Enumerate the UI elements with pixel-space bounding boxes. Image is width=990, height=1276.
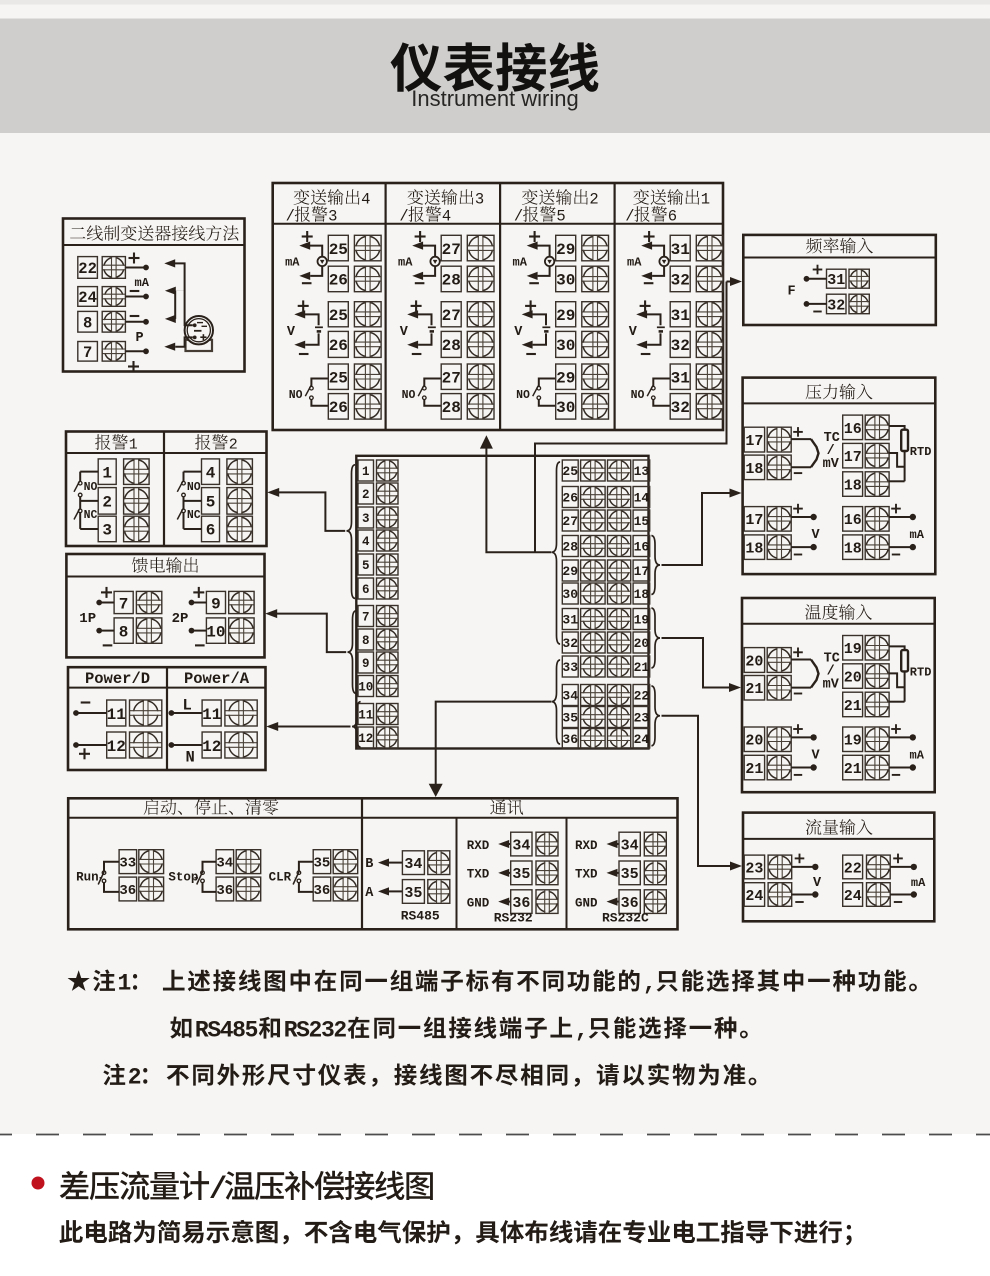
svg-text:L: L (183, 697, 192, 715)
svg-text:20: 20 (745, 653, 763, 670)
svg-text:35: 35 (404, 885, 422, 902)
svg-text:26: 26 (562, 491, 578, 506)
svg-text:5: 5 (556, 208, 565, 226)
svg-text:25: 25 (329, 370, 348, 388)
svg-text:34: 34 (512, 837, 530, 854)
svg-text:NO: NO (402, 389, 416, 402)
svg-text:/: / (514, 208, 523, 226)
svg-text:9: 9 (362, 657, 370, 671)
svg-text:NO: NO (84, 481, 98, 494)
svg-text:16: 16 (844, 512, 862, 529)
svg-text:Power/A: Power/A (184, 670, 250, 688)
svg-text:34: 34 (404, 856, 422, 873)
svg-text:23: 23 (634, 711, 650, 726)
svg-text:2: 2 (102, 494, 112, 512)
svg-text:29: 29 (556, 307, 575, 325)
svg-text:Run: Run (76, 871, 99, 885)
svg-text:17: 17 (745, 512, 763, 529)
svg-text:21: 21 (844, 761, 862, 778)
svg-text:30: 30 (556, 272, 575, 290)
svg-text:34: 34 (562, 689, 578, 704)
svg-text:28: 28 (442, 399, 461, 417)
svg-text:1: 1 (701, 191, 710, 209)
svg-text:V: V (287, 325, 296, 340)
svg-text:RS485: RS485 (195, 1018, 259, 1044)
svg-text:10: 10 (206, 623, 225, 641)
svg-text:25: 25 (329, 241, 348, 259)
svg-text:NO: NO (289, 389, 303, 402)
svg-text:31: 31 (671, 307, 690, 325)
svg-text:RS232: RS232 (284, 1018, 348, 1044)
svg-text:27: 27 (562, 514, 578, 529)
svg-text:26: 26 (329, 337, 348, 355)
svg-text:32: 32 (562, 636, 578, 651)
svg-text:24: 24 (634, 732, 650, 747)
svg-text:29: 29 (556, 241, 575, 259)
svg-text:7: 7 (119, 595, 129, 613)
svg-text:GND: GND (467, 896, 490, 910)
svg-text:28: 28 (442, 337, 461, 355)
svg-text:RS232: RS232 (494, 911, 533, 926)
svg-text:11: 11 (107, 706, 126, 724)
svg-text:16: 16 (844, 421, 862, 438)
svg-text:35: 35 (621, 866, 639, 883)
svg-text:21: 21 (634, 660, 650, 675)
svg-text:V: V (629, 325, 638, 340)
svg-text:19: 19 (844, 641, 862, 658)
svg-text:mA: mA (910, 528, 925, 542)
svg-text:24: 24 (745, 888, 763, 905)
svg-text:13: 13 (634, 464, 650, 479)
svg-text:11: 11 (358, 709, 373, 723)
svg-text:mA: mA (910, 748, 925, 762)
svg-text:,: , (643, 971, 657, 997)
svg-text:1: 1 (129, 437, 138, 454)
svg-text:26: 26 (329, 272, 348, 290)
svg-text:8: 8 (362, 634, 370, 648)
svg-text:31: 31 (562, 613, 578, 628)
svg-text:2P: 2P (172, 611, 189, 627)
svg-text:30: 30 (556, 337, 575, 355)
svg-text:V: V (812, 528, 821, 543)
svg-text:18: 18 (844, 541, 862, 558)
svg-text:19: 19 (844, 733, 862, 750)
svg-text:11: 11 (202, 706, 221, 724)
svg-text:24: 24 (78, 289, 97, 307)
svg-text:30: 30 (562, 587, 578, 602)
svg-text:/: / (625, 208, 634, 226)
svg-text:21: 21 (745, 681, 763, 698)
svg-text:V: V (514, 325, 523, 340)
svg-text:Stop: Stop (168, 871, 198, 885)
svg-text:1P: 1P (79, 611, 96, 627)
svg-text:29: 29 (556, 370, 575, 388)
svg-text:27: 27 (442, 370, 461, 388)
svg-text:2: 2 (128, 1065, 142, 1091)
svg-text:2: 2 (589, 191, 598, 209)
svg-text:1: 1 (102, 464, 112, 482)
svg-text:8: 8 (83, 314, 92, 332)
svg-text:3: 3 (328, 208, 337, 226)
svg-text:/: / (399, 208, 408, 226)
svg-text:TXD: TXD (467, 868, 490, 882)
svg-text:33: 33 (562, 660, 578, 675)
svg-text:6: 6 (668, 208, 677, 226)
svg-text:32: 32 (671, 272, 690, 290)
svg-text:Instrument wiring: Instrument wiring (411, 86, 579, 111)
svg-text:NO: NO (516, 389, 530, 402)
svg-text:mA: mA (285, 256, 300, 270)
svg-text:6: 6 (206, 522, 216, 540)
svg-text:22: 22 (634, 689, 650, 704)
svg-text:NC: NC (187, 509, 201, 522)
svg-text:36: 36 (562, 732, 578, 747)
svg-text:4: 4 (361, 191, 370, 209)
svg-text:14: 14 (634, 491, 650, 506)
svg-text:15: 15 (634, 514, 650, 529)
svg-text:5: 5 (362, 559, 370, 573)
svg-text:P: P (136, 331, 144, 346)
svg-text:24: 24 (844, 888, 862, 905)
svg-text:V: V (813, 876, 822, 891)
svg-text:35: 35 (562, 711, 578, 726)
svg-text:5: 5 (206, 494, 216, 512)
svg-text:26: 26 (329, 399, 348, 417)
svg-text:17: 17 (745, 433, 763, 450)
svg-text:NC: NC (84, 509, 98, 522)
svg-text:mA: mA (398, 256, 413, 270)
svg-text:F: F (788, 285, 796, 300)
svg-text:3: 3 (362, 512, 370, 526)
svg-text:32: 32 (671, 399, 690, 417)
svg-text:2: 2 (229, 437, 238, 454)
svg-text:4: 4 (206, 464, 216, 482)
svg-text:19: 19 (634, 613, 650, 628)
svg-text:mV: mV (823, 677, 840, 692)
svg-text:23: 23 (745, 860, 763, 877)
svg-text:mV: mV (823, 457, 840, 472)
svg-text:34: 34 (621, 837, 639, 854)
svg-text:18: 18 (844, 477, 862, 494)
svg-text:B: B (365, 857, 373, 872)
svg-text:36: 36 (216, 883, 233, 899)
svg-text:RXD: RXD (467, 839, 490, 853)
svg-text:N: N (186, 749, 195, 767)
svg-text:8: 8 (119, 623, 129, 641)
svg-text:22: 22 (844, 860, 862, 877)
svg-text:21: 21 (844, 698, 862, 715)
svg-text:36: 36 (512, 895, 530, 912)
svg-text:27: 27 (442, 307, 461, 325)
svg-text:,: , (575, 1018, 589, 1044)
svg-text:33: 33 (119, 856, 136, 872)
svg-text:4: 4 (362, 535, 370, 549)
svg-text:RTD: RTD (910, 445, 932, 459)
svg-text:34: 34 (216, 856, 233, 872)
svg-text:mA: mA (911, 876, 926, 890)
svg-text:mA: mA (513, 256, 528, 270)
svg-text:V: V (812, 748, 821, 763)
svg-text:20: 20 (634, 636, 650, 651)
svg-text:mA: mA (135, 276, 150, 290)
svg-text:9: 9 (211, 595, 221, 613)
svg-text:21: 21 (745, 761, 763, 778)
svg-text:28: 28 (562, 540, 578, 555)
svg-text:12: 12 (358, 732, 373, 746)
svg-text:16: 16 (634, 540, 650, 555)
svg-text:35: 35 (512, 866, 530, 883)
svg-text:CLR: CLR (269, 871, 292, 885)
svg-text:NO: NO (631, 389, 645, 402)
svg-text:4: 4 (442, 208, 451, 226)
svg-text:1: 1 (362, 465, 370, 479)
svg-text:27: 27 (442, 241, 461, 259)
svg-text:18: 18 (745, 461, 763, 478)
svg-text:31: 31 (827, 272, 845, 289)
svg-text:/: / (209, 1173, 228, 1208)
svg-text:RXD: RXD (575, 839, 598, 853)
svg-text:A: A (365, 886, 374, 901)
svg-text:7: 7 (362, 611, 370, 625)
svg-text:V: V (400, 325, 409, 340)
svg-text:17: 17 (634, 564, 650, 579)
svg-text:Power/D: Power/D (85, 670, 150, 688)
svg-text:7: 7 (83, 344, 92, 362)
svg-text:28: 28 (442, 272, 461, 290)
svg-text:25: 25 (562, 464, 578, 479)
svg-text:35: 35 (313, 856, 330, 872)
svg-text:3: 3 (475, 191, 484, 209)
svg-text:GND: GND (575, 896, 598, 910)
svg-text:20: 20 (745, 733, 763, 750)
svg-text:36: 36 (621, 895, 639, 912)
svg-text:25: 25 (329, 307, 348, 325)
svg-text:3: 3 (102, 522, 112, 540)
svg-text:2: 2 (362, 488, 370, 502)
svg-text:18: 18 (745, 541, 763, 558)
svg-text:RS232C: RS232C (602, 911, 649, 926)
svg-text:10: 10 (358, 681, 373, 695)
svg-text:NO: NO (187, 481, 201, 494)
svg-text:17: 17 (844, 449, 862, 466)
svg-text:36: 36 (119, 883, 136, 899)
svg-text:22: 22 (78, 260, 97, 278)
svg-text:32: 32 (827, 297, 845, 314)
svg-text:RTD: RTD (910, 665, 932, 679)
svg-text:31: 31 (671, 241, 690, 259)
svg-text:12: 12 (107, 738, 126, 756)
svg-text:6: 6 (362, 583, 370, 597)
svg-text:32: 32 (671, 337, 690, 355)
svg-text:31: 31 (671, 370, 690, 388)
svg-text:36: 36 (313, 883, 330, 899)
svg-text:30: 30 (556, 399, 575, 417)
svg-text:29: 29 (562, 564, 578, 579)
svg-text:12: 12 (202, 738, 221, 756)
svg-text:TXD: TXD (575, 868, 598, 882)
svg-text:20: 20 (844, 669, 862, 686)
svg-text:1: 1 (118, 971, 132, 997)
svg-text:/: / (286, 208, 295, 226)
svg-text:mA: mA (627, 256, 642, 270)
svg-text:18: 18 (634, 587, 650, 602)
svg-text:RS485: RS485 (401, 909, 440, 924)
